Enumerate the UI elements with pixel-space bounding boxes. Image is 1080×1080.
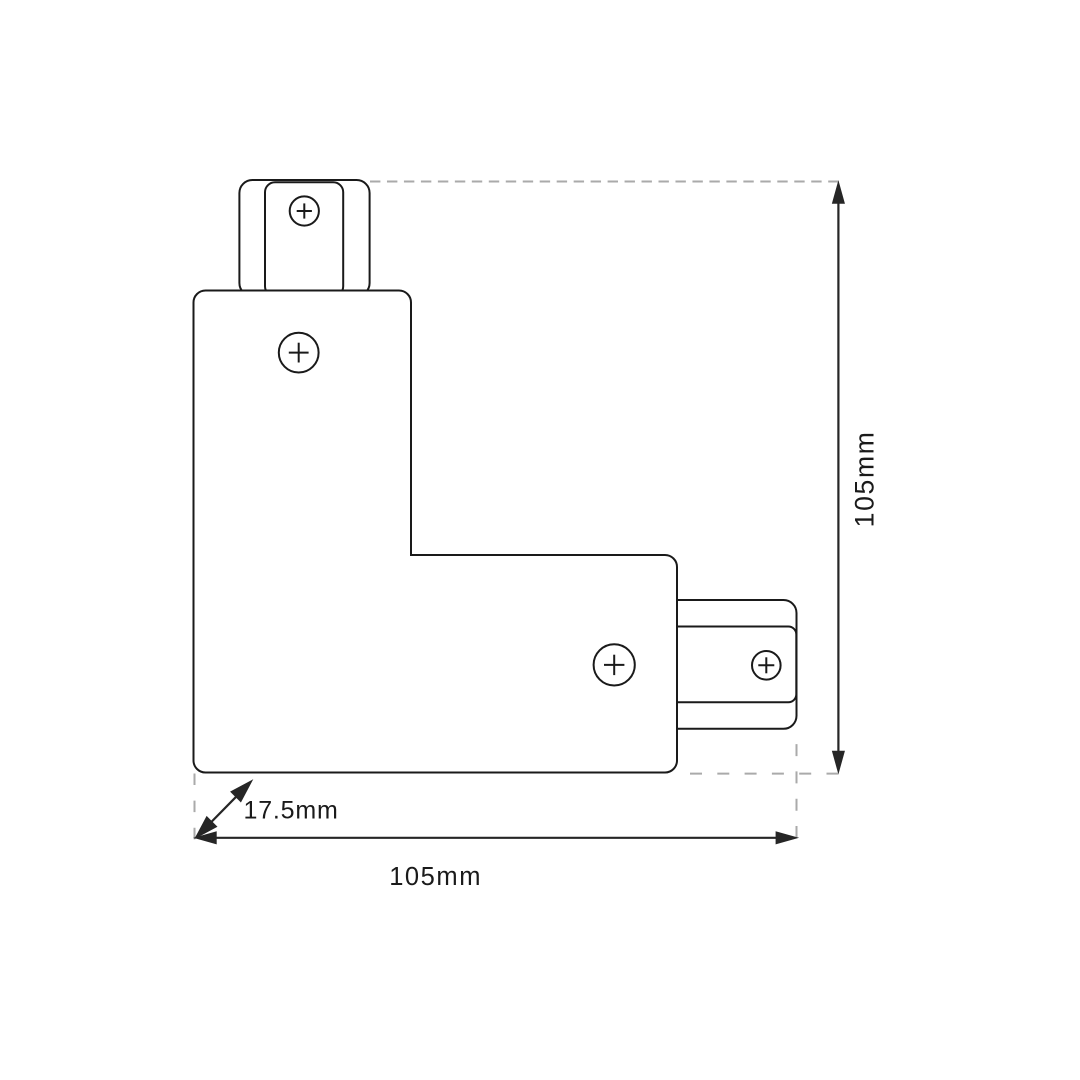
svg-text:105mm: 105mm (389, 863, 482, 891)
svg-text:17.5mm: 17.5mm (244, 796, 339, 824)
svg-text:105mm: 105mm (850, 430, 880, 527)
